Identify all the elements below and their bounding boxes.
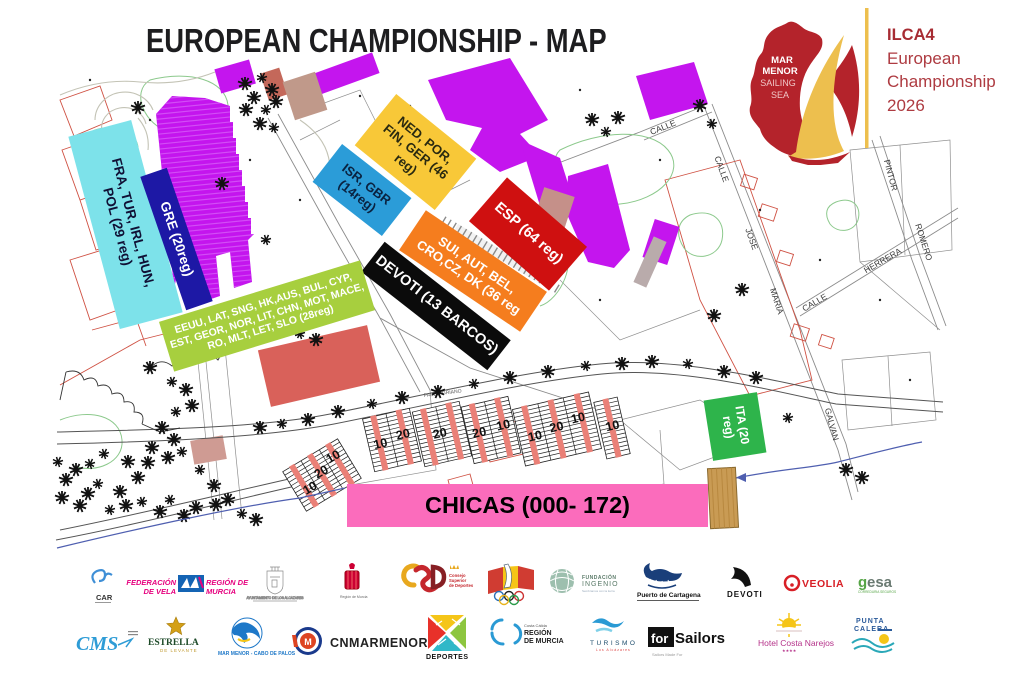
svg-text:MAR MENOR - CABO DE PALOS: MAR MENOR - CABO DE PALOS [218,651,296,657]
svg-text:M: M [304,637,312,647]
svg-text:esa: esa [867,574,893,591]
svg-text:DEPORTES: DEPORTES [426,654,469,661]
svg-text:MARIA: MARIA [768,287,786,316]
svg-text:SEA: SEA [771,90,789,100]
svg-text:CMS: CMS [76,633,118,655]
svg-text:Sailors: Sailors [675,630,725,647]
svg-text:MAR: MAR [771,55,793,66]
svg-text:CALLE: CALLE [800,291,829,313]
svg-text:CORREDURIA SEGUROS: CORREDURIA SEGUROS [858,590,896,594]
svg-text:DEVOTI: DEVOTI [727,590,763,599]
svg-text:Hotel Costa Narejos: Hotel Costa Narejos [758,638,834,648]
svg-text:FUNDACIÓN: FUNDACIÓN [582,573,617,581]
svg-text:DE VELA: DE VELA [143,587,176,596]
svg-text:ROMERO: ROMERO [913,222,934,262]
svg-text:ESTRELLA: ESTRELLA [148,638,199,648]
svg-text:HERRERA: HERRERA [862,246,903,276]
svg-text:Sailors Made For: Sailors Made For [652,652,683,657]
svg-text:de Deportes: de Deportes [449,583,474,588]
svg-text:CALLE: CALLE [649,117,678,136]
svg-text:JOSE: JOSE [743,227,760,252]
svg-text:★★★★: ★★★★ [782,648,797,653]
svg-text:CAR: CAR [96,593,113,602]
svg-text:Región de Murcia: Región de Murcia [340,595,367,599]
svg-text:REGIÓN: REGIÓN [524,628,552,637]
svg-text:Sembramos con la tierra: Sembramos con la tierra [582,589,615,593]
svg-text:SAILING: SAILING [760,78,796,88]
svg-text:Puerto de Cartagena: Puerto de Cartagena [637,592,701,599]
svg-text:DE LEVANTE: DE LEVANTE [160,648,198,653]
svg-text:CNMARMENOR: CNMARMENOR [330,636,428,650]
svg-text:MURCIA: MURCIA [206,587,236,596]
svg-text:g: g [858,574,867,591]
svg-text:VEOLIA: VEOLIA [802,578,844,590]
svg-text:INGENIO: INGENIO [582,581,619,588]
svg-text:AYUNTAMIENTO DE LOS ALCAZARES: AYUNTAMIENTO DE LOS ALCAZARES [246,596,303,600]
svg-text:DE MURCIA: DE MURCIA [524,638,564,645]
svg-text:MENOR: MENOR [762,66,798,77]
svg-text:REGIÓN DE: REGIÓN DE [206,578,249,587]
svg-text:TURISMO: TURISMO [590,640,637,647]
svg-text:Los Alcázares: Los Alcázares [596,648,631,652]
svg-text:for: for [651,631,668,646]
svg-text:FEDERACIÓN: FEDERACIÓN [126,578,176,587]
svg-text:PUNTA: PUNTA [856,618,885,625]
svg-text:Costa Cálida: Costa Cálida [524,623,548,628]
